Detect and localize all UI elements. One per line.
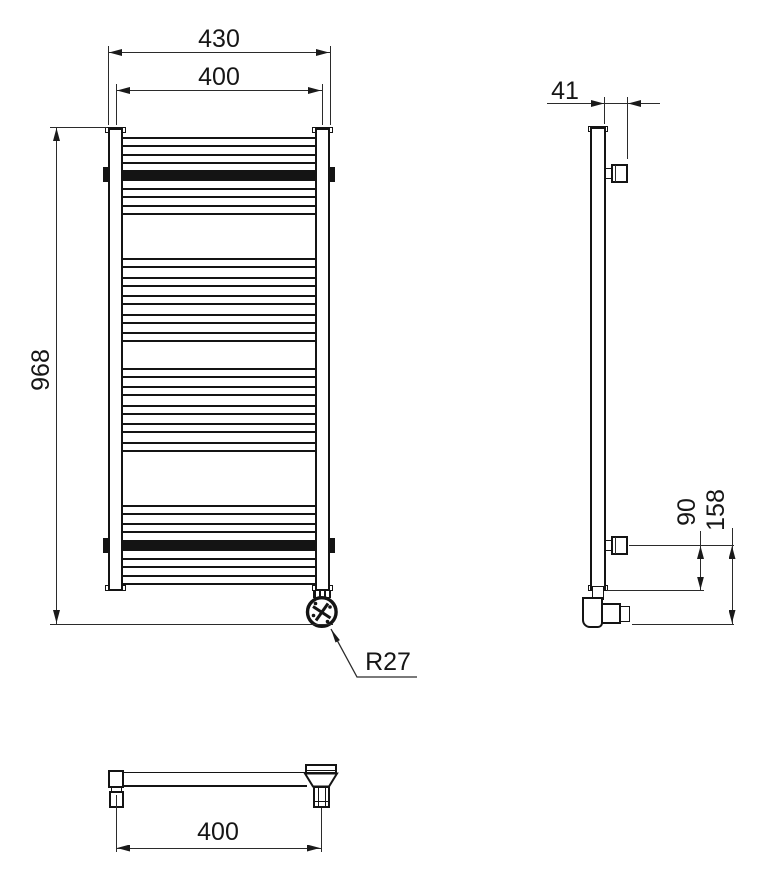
element-cylinder-line [314,801,330,802]
dimension-arrow [117,87,130,94]
dim-label-bracket-to-bottom: 90 [674,492,700,532]
element-pipe-cap-side [620,606,630,622]
dimension-arrow [109,49,122,56]
wall-bracket-mark [329,167,335,182]
dimension-line [56,127,57,624]
extension-line [627,97,628,159]
rung [121,558,317,568]
dim-label-depth: 41 [545,78,585,104]
rung [121,368,317,378]
rung-at-bracket [121,170,317,181]
extension-line [50,127,107,128]
extension-line [604,97,605,124]
dimension-arrow [308,87,321,94]
rung [121,575,317,585]
dim-label-center-width: 400 [184,64,254,90]
rung-profile-line [123,772,307,774]
rung [121,277,317,287]
extension-line [330,46,331,125]
extension-line-bracket-axis [629,545,734,546]
bottom-bracket-detail-line [615,537,616,554]
rung-at-bracket [121,540,317,551]
wall-bracket-mark [103,167,109,182]
element-body-side [582,597,603,628]
element-cylinder-line [325,787,326,807]
wall-bracket-mark [329,538,335,553]
dim-label-radius: R27 [357,649,419,675]
element-cylinder-line [318,787,319,807]
rung [121,442,317,452]
top-bracket-block [611,164,628,183]
dim-label-overall-width: 430 [184,26,254,52]
rung [121,332,317,342]
rung [121,188,317,198]
dim-label-height: 968 [28,335,54,405]
element-taper-bottom [302,762,340,789]
dim-label-bottom-center-width: 400 [183,819,253,845]
extension-line-tube-bottom [607,590,704,591]
dimension-arrow [591,100,604,107]
wall-bracket-mark [103,538,109,553]
side-vertical-tube [590,127,606,591]
right-vertical-tube [315,128,330,591]
rung [121,314,317,324]
bottom-bracket-block [611,536,628,555]
dimension-arrow [729,610,736,623]
extension-line-element-bottom [632,624,734,625]
rung [121,205,317,215]
rung [121,258,317,268]
rung [121,505,317,515]
element-pipe-side [601,603,621,624]
dimension-arrow [628,100,641,107]
rung [121,386,317,396]
rung [121,405,317,415]
element-cylinder-bottom [313,786,330,808]
dimension-arrow [697,577,704,590]
dimension-line [732,528,733,624]
dimension-arrow [117,845,130,852]
extension-line [116,795,117,852]
dim-label-bracket-to-element: 158 [703,484,729,536]
top-bracket-detail-line [615,165,616,182]
tube-section-bottom [108,770,124,788]
rung [121,423,317,433]
rung [121,137,317,147]
extension-line [108,46,109,125]
extension-line [321,808,322,852]
dimension-line [116,848,322,849]
rung [121,154,317,164]
dimension-arrow [316,49,329,56]
dimension-arrow [307,845,320,852]
dimension-arrow [697,546,704,559]
rung [121,523,317,533]
dimension-arrow [729,546,736,559]
extension-line [50,624,333,625]
rung [121,295,317,305]
dimension-arrow [53,610,60,623]
technical-drawing-canvas: 430 400 968 R27 [0,0,759,872]
dimension-arrow [53,128,60,141]
rung-profile-line [123,785,307,787]
